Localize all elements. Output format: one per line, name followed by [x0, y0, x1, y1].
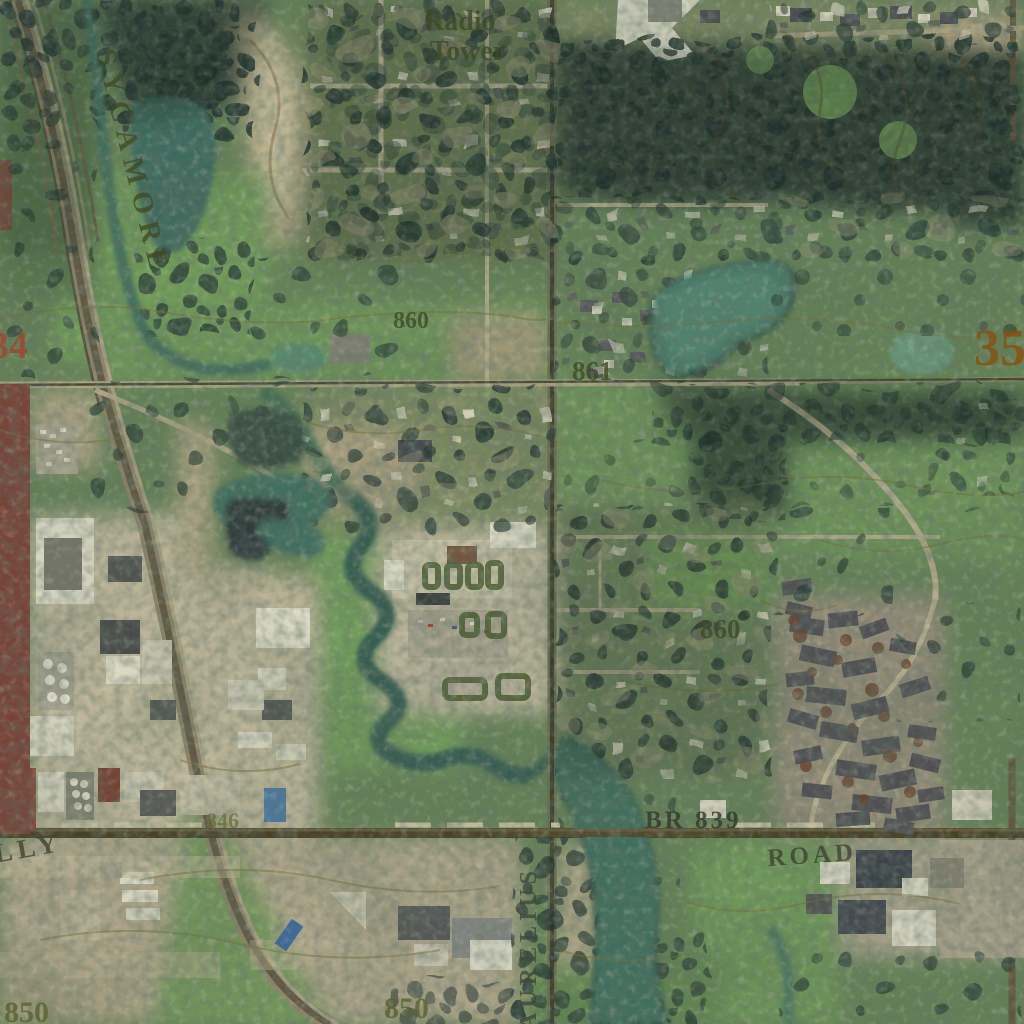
svg-text:850: 850 [4, 996, 49, 1024]
svg-text:861: 861 [572, 356, 613, 386]
svg-text:860: 860 [393, 308, 429, 334]
svg-text:BR 839: BR 839 [645, 807, 741, 834]
svg-text:860: 860 [700, 614, 741, 644]
svg-text:850: 850 [384, 992, 429, 1024]
svg-text:846: 846 [206, 808, 239, 833]
svg-text:35: 35 [974, 320, 1024, 377]
svg-text:AURELIUS: AURELIUS [516, 866, 542, 1024]
svg-text:Radio: Radio [424, 6, 496, 37]
svg-text:34: 34 [0, 325, 28, 367]
svg-text:Tower: Tower [430, 36, 505, 67]
